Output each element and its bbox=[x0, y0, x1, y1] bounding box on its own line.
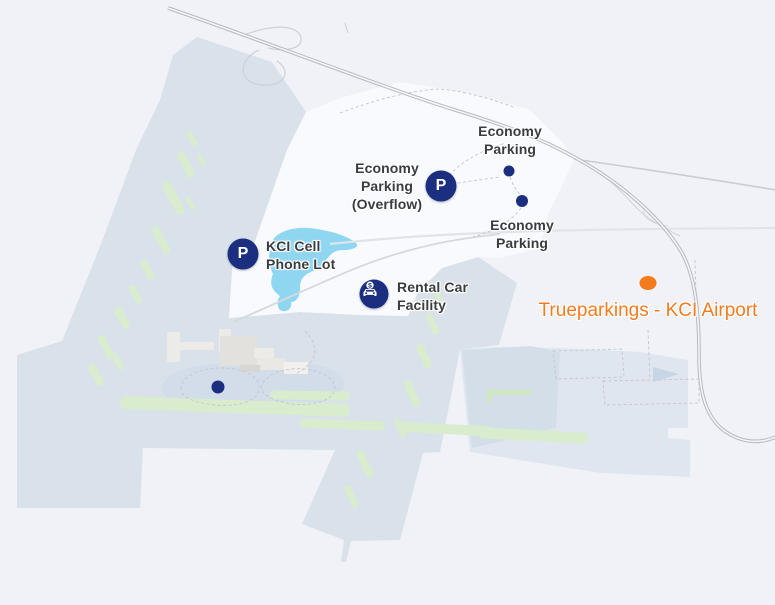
rental-car-facility-label: Rental Car Facility bbox=[397, 278, 468, 314]
rental-car-icon: $ bbox=[360, 280, 381, 301]
currency-glyph: $ bbox=[368, 282, 372, 289]
label-line: Rental Car bbox=[397, 278, 468, 296]
label-line: (Overflow) bbox=[352, 195, 422, 213]
map-canvas[interactable]: Economy Parking Economy Parking (Overflo… bbox=[0, 0, 775, 605]
economy-parking-overflow-marker[interactable]: P bbox=[426, 171, 457, 202]
parking-icon: P bbox=[238, 246, 249, 262]
economy-parking-north-label: Economy Parking bbox=[478, 122, 542, 158]
rental-car-facility-marker[interactable]: $ bbox=[360, 280, 389, 309]
trueparkings-label: Trueparkings - KCI Airport bbox=[539, 299, 758, 323]
parking-icon: P bbox=[436, 178, 447, 194]
label-line: Parking bbox=[490, 234, 554, 252]
label-line: Facility bbox=[397, 296, 468, 314]
label-line: Economy bbox=[478, 122, 542, 140]
label-line: Parking bbox=[352, 177, 422, 195]
label-line: Economy bbox=[490, 216, 554, 234]
kci-cell-phone-lot-label: KCI Cell Phone Lot bbox=[266, 237, 335, 273]
label-line: Phone Lot bbox=[266, 255, 335, 273]
economy-parking-south-dot[interactable] bbox=[516, 195, 528, 207]
trueparkings-marker[interactable] bbox=[640, 276, 657, 290]
economy-parking-overflow-label: Economy Parking (Overflow) bbox=[352, 159, 422, 213]
economy-parking-north-dot[interactable] bbox=[504, 166, 515, 177]
label-line: Parking bbox=[478, 140, 542, 158]
terminal-dot[interactable] bbox=[212, 381, 225, 394]
economy-parking-south-label: Economy Parking bbox=[490, 216, 554, 252]
label-line: Economy bbox=[352, 159, 422, 177]
kci-cell-phone-lot-marker[interactable]: P bbox=[228, 239, 259, 270]
label-line: KCI Cell bbox=[266, 237, 335, 255]
